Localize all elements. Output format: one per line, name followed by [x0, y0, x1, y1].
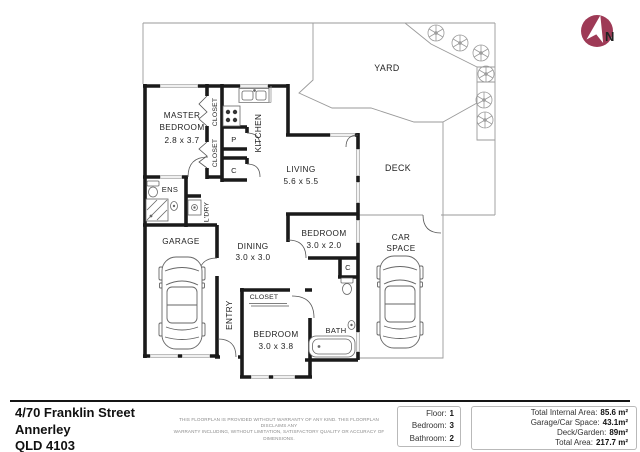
room-label-garage: GARAGE: [162, 237, 200, 246]
room-label-master-bedroom: BEDROOM: [159, 123, 204, 132]
room-dims-dining: 3.0 x 3.0: [235, 253, 270, 262]
compass-north-label: N: [605, 29, 614, 44]
room-dims-bedroom-front: 3.0 x 3.8: [258, 342, 293, 351]
room-label-bath: BATH: [325, 326, 346, 335]
stat-floor-value: 1: [450, 409, 454, 418]
area-deck-garden-value: 89m²: [609, 428, 628, 437]
floorplan-page: YARD DECK MASTER BEDROOM 2.8 x 3.7 CLOSE…: [0, 0, 640, 452]
tree-icon: [428, 25, 444, 41]
toilet-icon: [147, 181, 159, 197]
basin-icon: [171, 202, 178, 211]
room-label-ens: ENS: [162, 185, 179, 194]
room-label-laundry: L'DRY: [204, 202, 211, 223]
compass-icon: N: [581, 14, 614, 47]
room-label-closet: CLOSET: [212, 98, 219, 126]
floorplan-drawing: YARD DECK MASTER BEDROOM 2.8 x 3.7 CLOSE…: [0, 0, 640, 400]
stat-bedroom-label: Bedroom:: [412, 421, 447, 430]
area-summary-box: Total Internal Area:85.6 m² Garage/Car S…: [471, 406, 637, 450]
area-garage: Garage/Car Space:43.1m²: [472, 418, 628, 428]
area-total-internal-label: Total Internal Area:: [531, 408, 598, 417]
stat-floor-label: Floor:: [426, 409, 446, 418]
disclaimer-line2: WARRANTY INCLUDING, WITHOUT LIMITATION, …: [166, 429, 392, 441]
room-label-cupboard: C: [231, 166, 237, 175]
tree-icon: [477, 112, 493, 128]
room-label-pantry: P: [231, 135, 236, 144]
room-dims-master-bedroom: 2.8 x 3.7: [164, 136, 199, 145]
room-label-dining: DINING: [237, 242, 268, 251]
basin-icon: [348, 321, 355, 330]
car-icon: [377, 256, 423, 348]
area-total-label: Total Area:: [555, 438, 593, 447]
address-line3: QLD 4103: [15, 438, 135, 452]
room-label-kitchen: KITCHEN: [254, 114, 263, 153]
stat-bathroom-value: 2: [450, 434, 454, 443]
area-garage-label: Garage/Car Space:: [531, 418, 600, 427]
tree-icons: [428, 25, 494, 128]
tree-icon: [478, 66, 494, 82]
room-label-closet: CLOSET: [250, 294, 278, 301]
room-label-yard: YARD: [374, 63, 399, 73]
property-address: 4/70 Franklin Street Annerley QLD 4103: [15, 405, 135, 452]
stat-floor: Floor:1: [398, 408, 454, 421]
address-line1: 4/70 Franklin Street: [15, 405, 135, 422]
stat-bathroom-label: Bathroom:: [410, 434, 447, 443]
room-label-bedroom-front: BEDROOM: [253, 330, 298, 339]
footer-divider: [10, 400, 630, 402]
toilet-icon: [341, 278, 353, 295]
stat-bathroom: Bathroom:2: [398, 433, 454, 446]
tree-icon: [476, 92, 492, 108]
car-icon: [159, 257, 205, 349]
room-label-living: LIVING: [286, 165, 315, 174]
tree-icon: [473, 45, 489, 61]
bathtub-icon: [309, 336, 355, 357]
tree-icon: [452, 35, 468, 51]
room-label-closet: CLOSET: [212, 139, 219, 167]
room-label-deck: DECK: [385, 163, 411, 173]
shower-icon: [146, 199, 168, 221]
stat-bedroom-value: 3: [450, 421, 454, 430]
area-total-internal: Total Internal Area:85.6 m²: [472, 408, 628, 418]
laundry-tub-icon: [188, 200, 201, 215]
room-label-bedroom-mid: BEDROOM: [301, 229, 346, 238]
area-deck-garden-label: Deck/Garden:: [557, 428, 606, 437]
property-stats-box: Floor:1 Bedroom:3 Bathroom:2: [397, 406, 461, 447]
room-label-car-space: SPACE: [386, 244, 415, 253]
address-line2: Annerley: [15, 422, 135, 439]
room-dims-living: 5.6 x 5.5: [283, 177, 318, 186]
area-total-internal-value: 85.6 m²: [600, 408, 628, 417]
area-total: Total Area:217.7 m²: [472, 438, 628, 448]
stove-icon: [223, 106, 240, 126]
area-deck-garden: Deck/Garden:89m²: [472, 428, 628, 438]
room-label-cupboard: C: [345, 263, 351, 272]
room-label-car-space: CAR: [392, 233, 411, 242]
area-total-value: 217.7 m²: [596, 438, 628, 447]
disclaimer-line1: THIS FLOORPLAN IS PROVIDED WITHOUT WARRA…: [166, 417, 392, 429]
area-garage-value: 43.1m²: [603, 418, 628, 427]
room-label-entry: ENTRY: [225, 300, 234, 330]
sink-icon: [239, 89, 269, 103]
disclaimer-text: THIS FLOORPLAN IS PROVIDED WITHOUT WARRA…: [166, 417, 392, 442]
room-label-master-bedroom: MASTER: [164, 111, 201, 120]
stat-bedroom: Bedroom:3: [398, 420, 454, 433]
room-dims-bedroom-mid: 3.0 x 2.0: [306, 241, 341, 250]
